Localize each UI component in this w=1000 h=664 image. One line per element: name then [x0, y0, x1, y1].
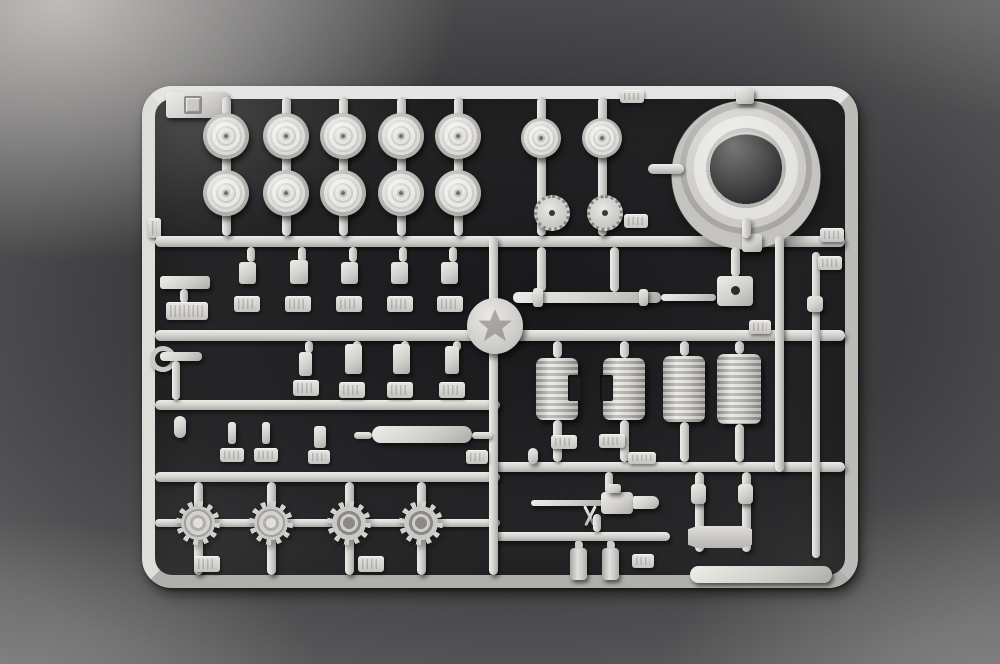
part-number-tab: [358, 556, 384, 572]
runner-stub: [172, 361, 180, 400]
runner-stub: [620, 341, 629, 358]
pin-fitting: [228, 422, 236, 444]
small-fitting: [341, 262, 358, 284]
drive-sprocket: [176, 501, 220, 545]
road-wheel-small: [582, 118, 622, 158]
runner-stub: [472, 432, 492, 439]
road-wheel: [378, 170, 424, 216]
small-fitting: [290, 260, 308, 284]
runner-vertical: [489, 236, 498, 575]
hook-fitting: [174, 416, 186, 438]
small-fitting: [239, 262, 256, 284]
perforated-disc: [534, 195, 570, 231]
road-wheel: [435, 170, 481, 216]
runner-stub: [537, 247, 546, 292]
maker-logo-disc: [467, 298, 523, 354]
part-number-tab: [166, 302, 208, 320]
runner-stub: [731, 247, 740, 277]
road-wheel: [320, 113, 366, 159]
drive-sprocket-open: [399, 501, 443, 545]
runner-stub: [742, 218, 751, 238]
part-number-tab: [820, 228, 844, 242]
runner-stub: [680, 341, 689, 356]
part-number-tab: [628, 452, 656, 464]
small-fitting: [345, 344, 362, 374]
small-fitting: [441, 262, 458, 284]
axle-collar: [639, 289, 648, 306]
part-number-tab: [148, 218, 161, 238]
runner-stub: [735, 341, 744, 354]
part-number-tab: [194, 556, 220, 572]
part-number-tab: [599, 434, 625, 448]
muffler: [372, 426, 472, 443]
part-number-tab: [339, 382, 365, 398]
small-fitting: [393, 344, 410, 374]
tow-bracket-plate: [688, 526, 752, 548]
runner-horizontal: [155, 400, 500, 410]
fuel-drum: [663, 356, 705, 422]
machine-gun-body: [601, 492, 633, 514]
drum-notch: [568, 375, 581, 401]
part-number-tab: [632, 554, 654, 568]
part-number-tab: [466, 450, 488, 464]
runner-stub: [247, 247, 255, 262]
small-bottle-fitting: [299, 352, 312, 376]
part-number-tab: [749, 320, 771, 334]
part-number-tab: [387, 382, 413, 398]
drum-notch: [600, 375, 613, 401]
small-bottle: [570, 548, 587, 580]
runner-stub: [735, 424, 744, 462]
small-fitting: [391, 262, 408, 284]
rod-collar: [807, 296, 823, 312]
machine-gun-stock: [633, 496, 659, 509]
turret-ring: [680, 102, 812, 234]
machine-gun-sight: [607, 484, 621, 493]
drive-sprocket-open: [327, 501, 371, 545]
tow-collar: [738, 484, 753, 504]
part-number-tab: [818, 256, 842, 270]
mount-block-hole: [731, 286, 740, 295]
runner-stub: [553, 341, 562, 358]
fuel-drum: [717, 354, 761, 424]
axle-collar: [533, 288, 543, 307]
runner-vertical: [775, 236, 784, 472]
sprue: [142, 86, 858, 588]
part-number-tab: [439, 382, 465, 398]
fuel-drum: [603, 358, 645, 420]
flat-bracket: [160, 276, 210, 289]
runner-stub: [180, 289, 188, 303]
road-wheel: [263, 170, 309, 216]
runner-horizontal: [490, 532, 670, 541]
sprue-letter-emboss: [184, 96, 202, 114]
hook-fitting: [528, 448, 538, 464]
runner-stub: [449, 247, 457, 262]
road-wheel-small: [521, 118, 561, 158]
drive-sprocket: [249, 501, 293, 545]
part-number-tab: [437, 296, 463, 312]
tow-collar: [691, 484, 706, 504]
part-number-tab: [551, 435, 577, 449]
part-number-tab: [387, 296, 413, 312]
perforated-disc: [587, 195, 623, 231]
photo-canvas: { "scene": { "type": "photograph", "subj…: [0, 0, 1000, 664]
runner-stub: [354, 432, 372, 439]
part-number-tab: [254, 448, 278, 462]
pin-fitting: [445, 346, 459, 374]
part-number-tab: [336, 296, 362, 312]
part-number-tab: [220, 448, 244, 462]
road-wheel: [203, 170, 249, 216]
runner-stub: [593, 514, 601, 532]
small-fitting: [314, 426, 326, 448]
part-number-tab: [624, 214, 648, 228]
road-wheel: [203, 113, 249, 159]
part-number-tab: [234, 296, 260, 312]
road-wheel: [320, 170, 366, 216]
road-wheel: [263, 113, 309, 159]
runner-stub: [680, 422, 689, 462]
part-number-tab: [293, 380, 319, 396]
axle-rod-tip: [661, 294, 716, 301]
fuel-drum: [536, 358, 578, 420]
road-wheel: [378, 113, 424, 159]
sprue-gate: [736, 88, 754, 104]
bottom-gate-capsule: [690, 566, 832, 583]
runner-stub: [349, 247, 357, 262]
small-bottle: [602, 548, 619, 580]
runner-stub: [610, 247, 619, 292]
maker-logo-emboss: [476, 307, 514, 345]
runner-stub: [399, 247, 407, 262]
road-wheel: [435, 113, 481, 159]
part-number-tab: [308, 450, 330, 464]
part-number-tab: [620, 90, 644, 103]
runner-horizontal: [155, 472, 500, 482]
pin-fitting: [262, 422, 270, 444]
elbow-pipe: [160, 352, 202, 361]
runner-horizontal: [490, 462, 845, 472]
runner-stub: [648, 164, 684, 174]
part-number-tab: [285, 296, 311, 312]
